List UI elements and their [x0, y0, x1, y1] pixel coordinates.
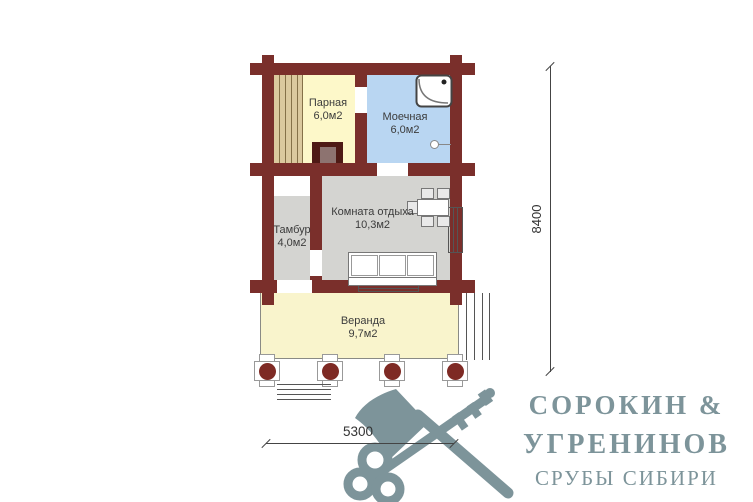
- logo-text-block: СОРОКИН & УГРЕНИНОВ СРУБЫ СИБИРИ: [500, 386, 753, 491]
- side-steps: [489, 293, 490, 360]
- sofa-backrest: [349, 277, 436, 285]
- sofa-cushion: [407, 255, 434, 276]
- veranda-column-post: [384, 363, 401, 380]
- dimension-label-horizontal: 5300: [330, 424, 386, 439]
- room-area: 4,0м2: [264, 237, 320, 250]
- label-parnaya: Парная 6,0м2: [294, 97, 362, 123]
- side-steps: [474, 293, 475, 360]
- floor-plan-canvas: Парная 6,0м2 Моечная 6,0м2 Тамбур 4,0м2 …: [0, 0, 753, 502]
- veranda-column-post: [322, 363, 339, 380]
- label-komnata: Комната отдыха 10,3м2: [310, 206, 435, 232]
- wall-left: [262, 55, 274, 305]
- front-steps: [277, 394, 331, 395]
- logo-line-3: СРУБЫ СИБИРИ: [500, 465, 753, 491]
- stove: [312, 142, 343, 163]
- label-veranda: Веранда 9,7м2: [325, 315, 401, 341]
- window-komnata-right: [448, 207, 463, 253]
- stove-firebox: [320, 147, 336, 163]
- side-steps: [466, 293, 467, 360]
- front-steps: [277, 399, 331, 400]
- front-steps: [277, 384, 331, 385]
- veranda-column-post: [259, 363, 276, 380]
- veranda-column-post: [447, 363, 464, 380]
- room-area: 9,7м2: [325, 328, 401, 341]
- sofa: [348, 252, 437, 286]
- dimension-line-horizontal: [266, 443, 454, 444]
- shower-cabin-icon: [415, 74, 453, 108]
- door-tambur-komnata: [310, 250, 322, 276]
- room-name: Парная: [294, 97, 362, 110]
- logo-line-2: УГРЕНИНОВ: [500, 424, 753, 465]
- room-area: 6,0м2: [370, 124, 440, 137]
- dimension-label-vertical: 8400: [529, 197, 545, 241]
- tambur-entry-area: [274, 176, 310, 196]
- sofa-cushion: [351, 255, 378, 276]
- room-area: 10,3м2: [310, 219, 435, 232]
- room-name: Моечная: [370, 111, 440, 124]
- room-name: Веранда: [325, 315, 401, 328]
- room-area: 6,0м2: [294, 110, 362, 123]
- chair: [437, 188, 450, 199]
- room-name: Комната отдыха: [310, 206, 435, 219]
- dimension-line-vertical: [550, 66, 551, 372]
- wall-middle-upper: [250, 163, 475, 176]
- door-moechnaya-komnata: [377, 163, 408, 176]
- sofa-cushion: [379, 255, 406, 276]
- front-steps: [277, 389, 331, 390]
- logo-line-1: СОРОКИН &: [500, 386, 753, 424]
- chair: [421, 188, 434, 199]
- side-steps: [482, 293, 483, 360]
- chair: [437, 216, 450, 227]
- shower-valve-line: [438, 144, 451, 145]
- label-moechnaya: Моечная 6,0м2: [370, 111, 440, 137]
- door-tambur-veranda: [277, 280, 312, 293]
